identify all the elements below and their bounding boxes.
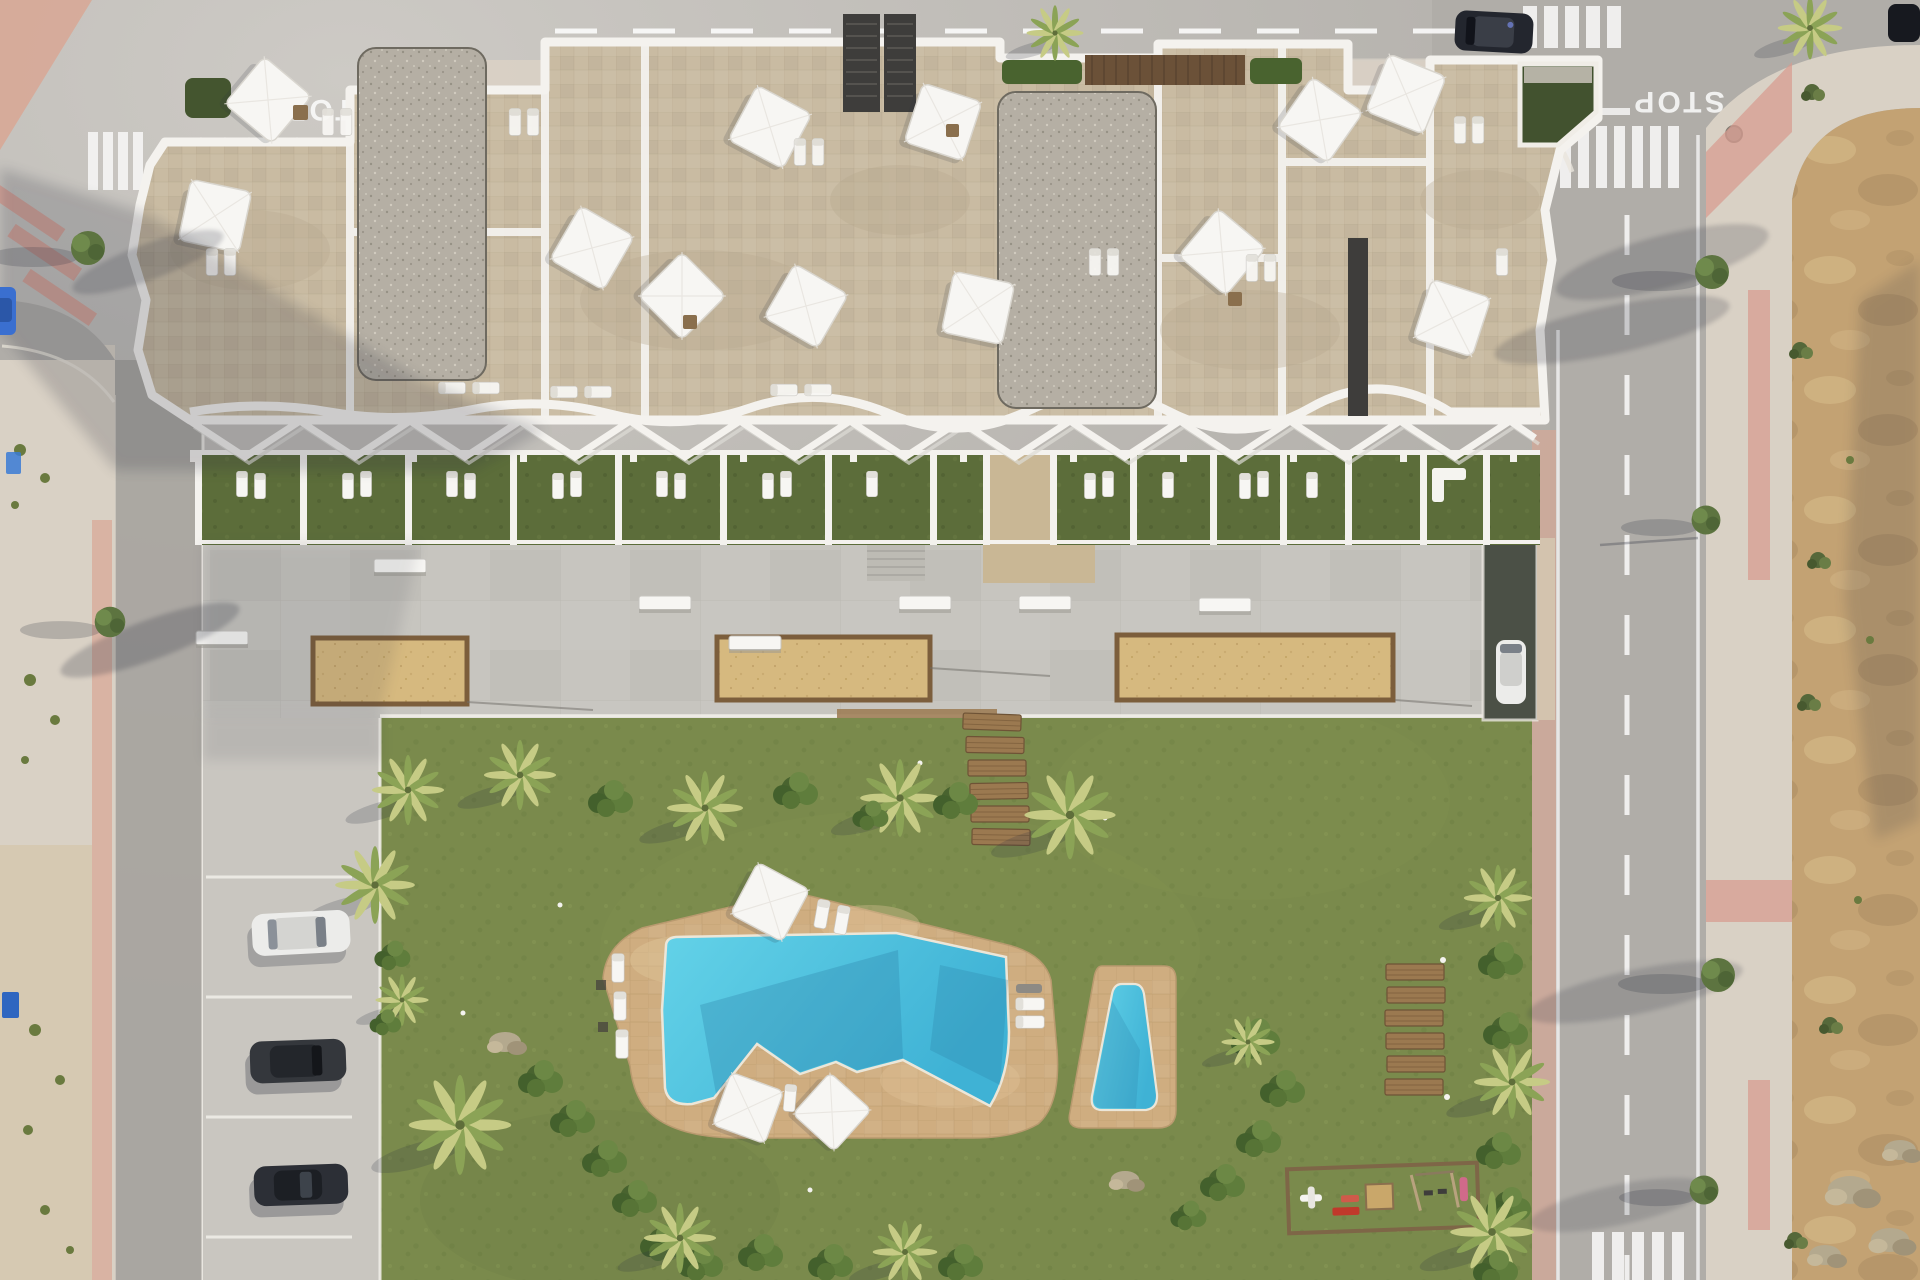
stop-marking-right: STOP [1631, 85, 1724, 118]
parked-car-dark-1 [244, 1038, 347, 1094]
parked-car-dark-2 [248, 1163, 349, 1217]
stairwell-boxes [843, 14, 916, 112]
parked-car-white [246, 909, 352, 967]
dark-wall [1348, 238, 1368, 416]
aerial-photo: Top-down aerial render of a new-build ap… [0, 0, 1920, 1280]
petanque-court [1117, 635, 1393, 700]
car-edge-top-right [1888, 4, 1920, 42]
car-on-ramp [1496, 640, 1526, 704]
gravel-roof [998, 92, 1156, 408]
pink-slide [1459, 1177, 1468, 1201]
stone-platform [983, 543, 1095, 583]
left-street [115, 360, 203, 1280]
red-bench [1332, 1207, 1359, 1216]
aerial-render: Top-down aerial render of a new-build ap… [0, 0, 1920, 1280]
blue-car-left-edge [0, 287, 16, 335]
blue-bin [6, 452, 21, 474]
street-car-navy [1454, 10, 1534, 54]
garage-ramp [1483, 538, 1555, 720]
blue-bin [2, 992, 19, 1018]
gravel-roof [358, 48, 486, 380]
